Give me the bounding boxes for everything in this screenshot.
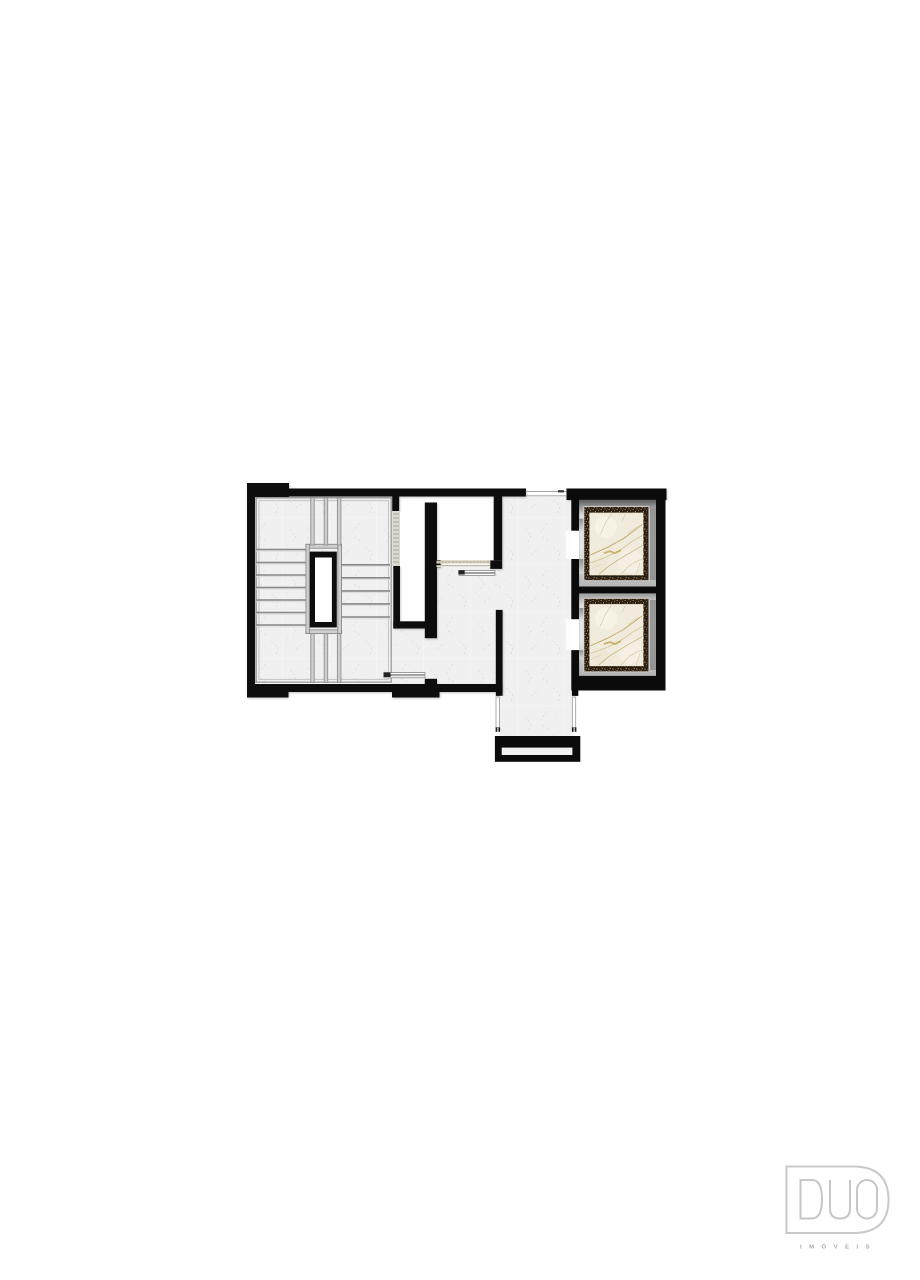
svg-text:IMÓVEIS: IMÓVEIS (800, 1243, 877, 1251)
